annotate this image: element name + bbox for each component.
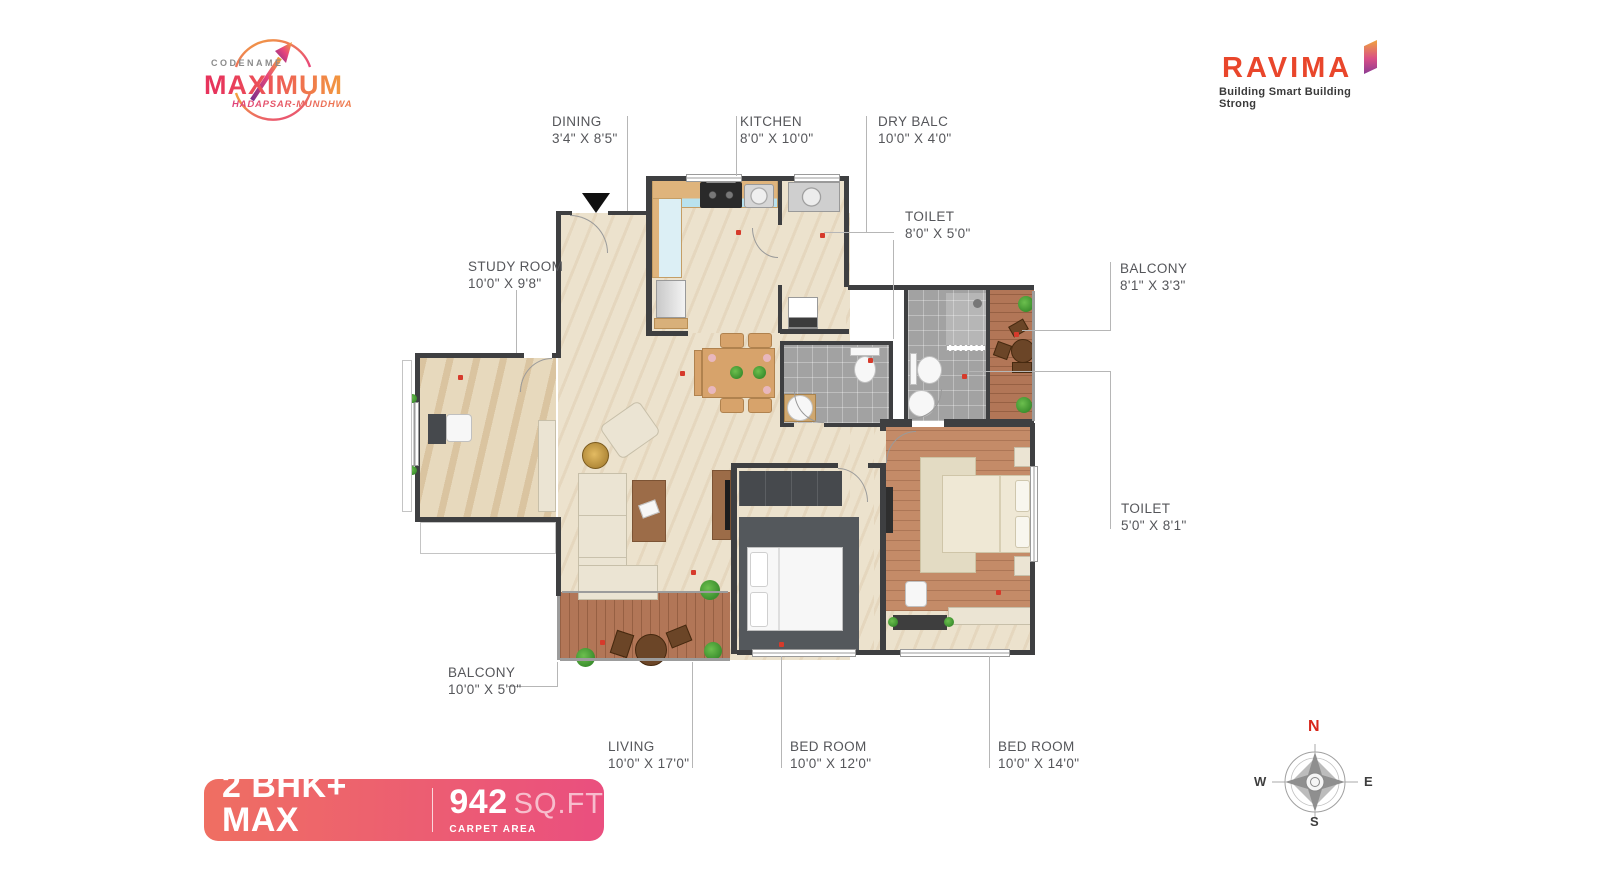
- room-name: BED ROOM: [790, 738, 872, 755]
- dining-chair-icon: [748, 398, 772, 413]
- unit-type-block: 2 BHK+ MAX TYPICAL UNIT PLAN: [222, 769, 416, 851]
- plant-icon: [888, 617, 898, 627]
- leader-line: [968, 371, 1110, 372]
- room-label-toilet-2: TOILET 5'0" X 8'1": [1121, 500, 1187, 535]
- room-name: DINING: [552, 113, 618, 130]
- room-dims: 3'4" X 8'5": [552, 130, 618, 147]
- room-label-study: STUDY ROOM 10'0" X 9'8": [468, 258, 563, 293]
- room-label-living: LIVING 10'0" X 17'0": [608, 738, 690, 773]
- electrical-point-marker: [962, 374, 967, 379]
- room-dims: 10'0" X 14'0": [998, 755, 1080, 772]
- window: [794, 174, 840, 182]
- leader-line: [627, 116, 628, 211]
- room-label-kitchen: KITCHEN 8'0" X 10'0": [740, 113, 814, 148]
- compass-north-label: N: [1308, 718, 1320, 736]
- electrical-point-marker: [779, 642, 784, 647]
- room-dims: 8'0" X 10'0": [740, 130, 814, 147]
- leader-line: [516, 290, 517, 353]
- wall: [780, 341, 893, 345]
- compass-east-label: E: [1364, 774, 1373, 789]
- balcony-railing: [560, 658, 730, 661]
- codename-label: CODENAME: [211, 58, 284, 68]
- dresser-icon: [893, 615, 947, 630]
- electrical-point-marker: [1014, 332, 1019, 337]
- wall: [780, 329, 849, 334]
- double-bed-icon: [747, 547, 843, 631]
- wc-bowl-icon: [917, 356, 942, 384]
- unit-summary-banner: 2 BHK+ MAX TYPICAL UNIT PLAN 942 SQ.FT C…: [204, 779, 604, 841]
- room-label-balcony-1: BALCONY 8'1" X 3'3": [1120, 260, 1187, 295]
- dining-chair-icon: [720, 333, 744, 348]
- unit-subtitle: TYPICAL UNIT PLAN: [222, 840, 416, 851]
- room-name: BED ROOM: [998, 738, 1080, 755]
- planter-ledge: [420, 522, 556, 554]
- electrical-point-marker: [680, 371, 685, 376]
- plant-icon: [944, 617, 954, 627]
- blanket-fold: [999, 476, 1001, 552]
- window: [686, 174, 742, 182]
- room-label-balcony-2: BALCONY 10'0" X 5'0": [448, 664, 522, 699]
- wall: [646, 331, 688, 336]
- wall: [780, 341, 784, 427]
- stove-icon: [700, 182, 742, 208]
- leader-line: [557, 662, 558, 687]
- leader-line: [1110, 371, 1111, 529]
- leader-line: [989, 656, 990, 768]
- leader-line: [893, 240, 894, 339]
- study-chair-icon: [446, 414, 472, 442]
- wall: [778, 285, 782, 333]
- banner-divider: [432, 788, 434, 832]
- dining-bench-icon: [694, 350, 702, 396]
- fridge-platform: [654, 318, 688, 329]
- area-block: 942 SQ.FT CARPET AREA: [449, 785, 604, 835]
- developer-name: RAVIMA: [1222, 52, 1352, 85]
- room-name: LIVING: [608, 738, 690, 755]
- room-name: BALCONY: [1120, 260, 1187, 277]
- plant-icon: [1016, 397, 1032, 413]
- wall: [552, 353, 561, 358]
- double-bed-icon: [942, 475, 1034, 553]
- kitchen-sink-icon: [744, 184, 774, 208]
- room-name: TOILET: [1121, 500, 1187, 517]
- developer-tagline: Building Smart Building Strong: [1219, 86, 1388, 110]
- chair-icon: [905, 581, 927, 607]
- wall: [415, 353, 524, 358]
- side-table-icon: [582, 442, 609, 469]
- floorplan-page: DINING 3'4" X 8'5" KITCHEN 8'0" X 10'0" …: [0, 0, 1600, 889]
- plant-icon: [700, 580, 720, 600]
- developer-logo: RAVIMA Building Smart Building Strong: [1218, 40, 1388, 102]
- kitchen-counter-left: [652, 198, 682, 278]
- entrance-arrow-icon: [582, 193, 610, 213]
- unit-type: 2 BHK+ MAX: [222, 769, 416, 837]
- wall: [778, 178, 782, 225]
- room-dims: 8'0" X 5'0": [905, 225, 971, 242]
- room-name: KITCHEN: [740, 113, 814, 130]
- room-name: STUDY ROOM: [468, 258, 563, 275]
- room-name: BALCONY: [448, 664, 522, 681]
- fridge-icon: [656, 280, 686, 318]
- window: [1030, 466, 1038, 562]
- project-location: HADAPSAR-MUNDHWA: [232, 99, 352, 110]
- room-dims: 10'0" X 12'0": [790, 755, 872, 772]
- table-plant-icon: [753, 366, 766, 379]
- electrical-point-marker: [868, 358, 873, 363]
- plate-icon: [708, 354, 716, 362]
- sliding-door-track: [562, 591, 728, 593]
- leader-line: [866, 116, 867, 233]
- electrical-point-marker: [996, 590, 1001, 595]
- pillow-icon: [750, 552, 768, 587]
- plate-icon: [763, 354, 771, 362]
- room-dims: 10'0" X 17'0": [608, 755, 690, 772]
- compass-west-label: W: [1254, 774, 1266, 789]
- room-label-dining: DINING 3'4" X 8'5": [552, 113, 618, 148]
- planter-ledge: [402, 360, 412, 512]
- project-logo: CODENAME MAXIMUM HADAPSAR-MUNDHWA: [196, 36, 372, 128]
- compass-south-label: S: [1310, 814, 1319, 829]
- room-name: DRY BALC: [878, 113, 952, 130]
- electrical-point-marker: [691, 570, 696, 575]
- sofa-chaise-icon: [578, 565, 658, 600]
- brand-flag-icon: [1364, 40, 1377, 74]
- tv-icon: [886, 487, 893, 533]
- pillow-icon: [1015, 480, 1030, 512]
- area-value: 942: [449, 785, 507, 819]
- electrical-point-marker: [736, 230, 741, 235]
- leader-line: [736, 116, 737, 176]
- wall: [904, 289, 908, 423]
- wall: [868, 463, 880, 468]
- washing-machine-icon: [788, 297, 818, 333]
- room-label-toilet-1: TOILET 8'0" X 5'0": [905, 208, 971, 243]
- plate-icon: [708, 386, 716, 394]
- utility-sink-icon: [788, 182, 840, 212]
- room-label-dry-balc: DRY BALC 10'0" X 4'0": [878, 113, 952, 148]
- compass: N W E S: [1252, 716, 1378, 828]
- area-subtitle: CARPET AREA: [449, 824, 604, 835]
- leader-line: [1022, 330, 1110, 331]
- bench-icon: [948, 607, 1034, 625]
- window: [752, 649, 856, 657]
- balcony-railing: [1032, 291, 1035, 421]
- room-dims: 10'0" X 9'8": [468, 275, 563, 292]
- wall: [889, 341, 893, 427]
- wall: [880, 463, 886, 654]
- wall: [556, 517, 561, 596]
- room-dims: 8'1" X 3'3": [1120, 277, 1187, 294]
- room-name: TOILET: [905, 208, 971, 225]
- wc-cistern-icon: [850, 347, 880, 356]
- wall: [886, 419, 912, 427]
- room-label-bedroom-2: BED ROOM 10'0" X 14'0": [998, 738, 1080, 773]
- tv-icon: [725, 480, 730, 530]
- room-dims: 5'0" X 8'1": [1121, 517, 1187, 534]
- balcony-railing: [557, 596, 560, 660]
- project-name: MAXIMUM: [204, 70, 343, 101]
- shower-head-icon: [973, 299, 982, 308]
- shower-strip: [946, 345, 986, 351]
- wall: [780, 423, 794, 427]
- area-unit: SQ.FT: [514, 788, 604, 821]
- electrical-point-marker: [600, 640, 605, 645]
- wall: [608, 211, 650, 215]
- window: [900, 649, 1010, 657]
- pillow-icon: [1015, 516, 1030, 548]
- leader-line: [692, 662, 693, 768]
- dining-chair-icon: [720, 398, 744, 413]
- wc-cistern-icon: [910, 353, 917, 385]
- table-plant-icon: [730, 366, 743, 379]
- study-wardrobe-icon: [538, 420, 556, 512]
- plate-icon: [763, 386, 771, 394]
- wall: [731, 463, 838, 468]
- leader-line: [781, 656, 782, 768]
- wall: [848, 285, 1034, 290]
- wall: [880, 419, 886, 431]
- blanket-fold: [778, 548, 780, 630]
- leader-line: [824, 232, 894, 233]
- wardrobe-icon: [739, 471, 842, 506]
- patio-table-icon: [635, 634, 667, 666]
- electrical-point-marker: [820, 233, 825, 238]
- room-label-bedroom-1: BED ROOM 10'0" X 12'0": [790, 738, 872, 773]
- room-dims: 10'0" X 5'0": [448, 681, 522, 698]
- electrical-point-marker: [458, 375, 463, 380]
- leader-line: [1110, 262, 1111, 331]
- wall: [646, 176, 652, 335]
- room-dims: 10'0" X 4'0": [878, 130, 952, 147]
- pillow-icon: [750, 592, 768, 627]
- study-desk-icon: [428, 414, 446, 444]
- wall: [986, 289, 990, 421]
- dining-chair-icon: [748, 333, 772, 348]
- wall: [731, 463, 737, 654]
